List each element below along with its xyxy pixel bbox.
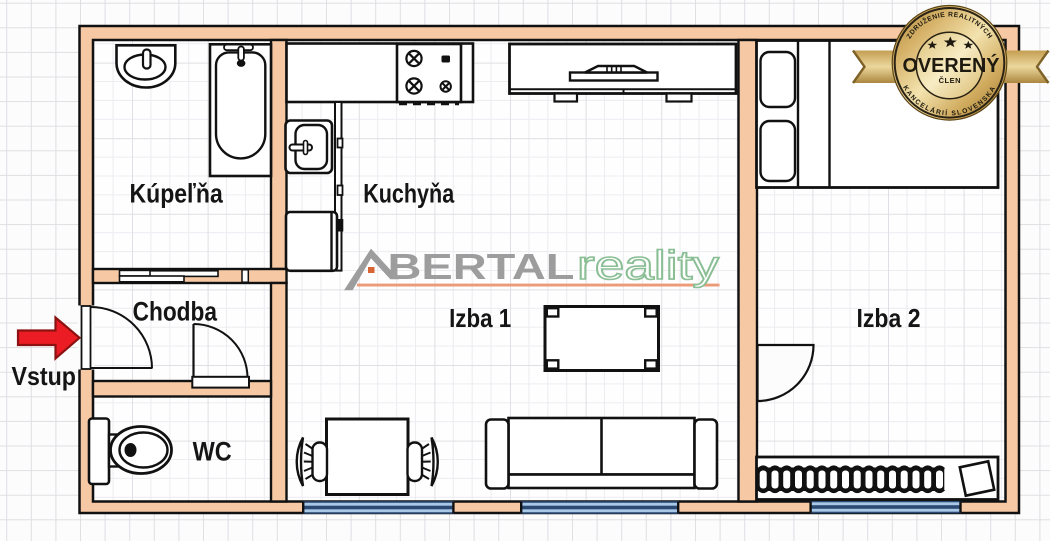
svg-text:BERTAL: BERTAL <box>388 246 575 287</box>
svg-text:Chodba: Chodba <box>133 297 218 327</box>
svg-text:Izba 1: Izba 1 <box>449 303 511 333</box>
svg-text:reality: reality <box>577 242 720 288</box>
svg-text:Vstup: Vstup <box>12 361 77 391</box>
svg-text:Kúpeľňa: Kúpeľňa <box>130 179 224 209</box>
svg-text:OVERENÝ: OVERENÝ <box>903 53 1000 77</box>
svg-text:ČLEN: ČLEN <box>939 76 961 85</box>
svg-text:Kuchyňa: Kuchyňa <box>363 179 455 209</box>
svg-text:WC: WC <box>193 436 232 466</box>
svg-text:Izba 2: Izba 2 <box>857 303 921 333</box>
